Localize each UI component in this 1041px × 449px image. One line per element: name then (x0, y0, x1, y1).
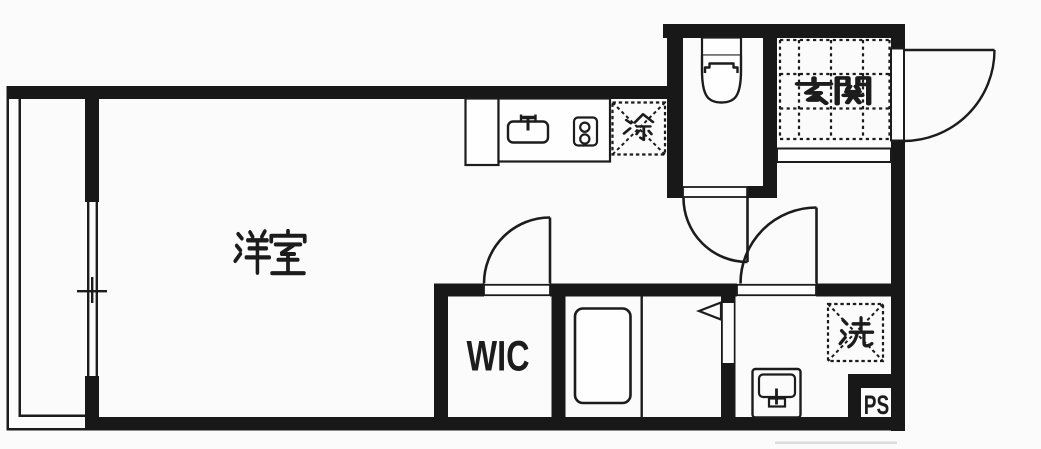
svg-text:PS: PS (864, 390, 889, 420)
svg-text:WIC: WIC (466, 333, 529, 380)
